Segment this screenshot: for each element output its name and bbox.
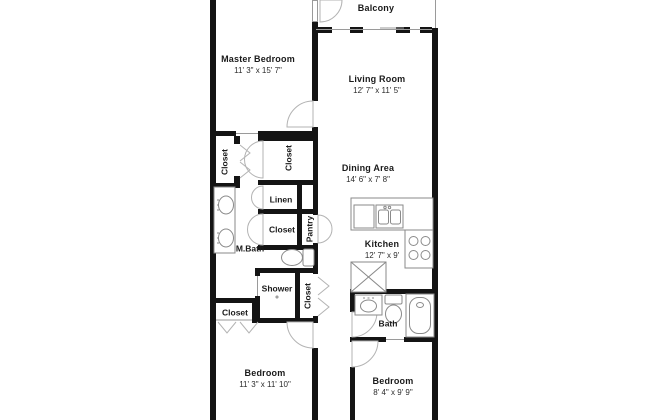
room-label-shower: Shower [262, 278, 293, 299]
room-label-kitchen: Kitchen 12' 7" x 9' [365, 239, 399, 261]
wall-core-right-upper [313, 136, 318, 215]
room-label-master-bedroom: Master Bedroom 11' 3" x 15' 7" [221, 54, 295, 76]
pantry-name: Pantry [305, 216, 315, 242]
closet-bedroom1-name: Closet [222, 308, 248, 318]
bedroom2-door-swing [352, 341, 378, 367]
closet-shower-name: Closet [303, 283, 313, 309]
wall-bedroom2-left [350, 367, 355, 420]
mbath-toilet-tank [303, 249, 314, 266]
wall-master-bottom-right [258, 131, 318, 136]
bedroom2-name: Bedroom [373, 376, 414, 388]
balcony-door-jamb [313, 1, 318, 22]
living-room-dims: 12' 7" x 11' 5" [349, 86, 406, 96]
wall-hallcloset-stub-top [234, 136, 240, 144]
closet-mbath-name: Closet [269, 225, 295, 235]
wall-bedroom1-right [312, 348, 318, 420]
wall-master-living [312, 22, 318, 101]
wall-core-top [258, 136, 318, 141]
floor-plan-drawing [0, 0, 650, 420]
kitchen-dims: 12' 7" x 9' [365, 251, 399, 261]
linen-name: Linen [270, 195, 293, 205]
stove-burner [409, 237, 418, 246]
mbath-toilet-bowl [282, 250, 303, 266]
bedroom1-closet-bifold [218, 322, 258, 333]
room-label-closet-master-hall: Closet [214, 149, 235, 175]
room-label-closet-mbath: Closet [269, 219, 295, 240]
bath-name: Bath [379, 319, 398, 329]
room-label-closet-shower: Closet [297, 283, 318, 309]
wall-core-divider1 [258, 180, 318, 185]
balcony-door-swing [320, 0, 342, 22]
dining-area-name: Dining Area [342, 163, 394, 175]
bathtub-drain [417, 303, 424, 308]
mbath-name: M.Bath [236, 244, 264, 254]
room-label-mbath: M.Bath [236, 238, 264, 259]
kitchen-sink-bowl [391, 210, 401, 224]
bedroom1-door-swing [287, 322, 313, 348]
wall-bath-left [350, 294, 355, 312]
wall-shower-top [255, 268, 318, 273]
kitchen-faucet [388, 206, 390, 208]
dining-area-dims: 14' 6" x 7' 8" [342, 175, 394, 185]
mbath-sink [219, 196, 234, 214]
room-label-balcony: Balcony [358, 3, 394, 15]
room-label-living-room: Living Room 12' 7" x 11' 5" [349, 74, 406, 96]
bath-toilet-tank [385, 295, 402, 304]
room-label-closet-core: Closet [278, 145, 299, 171]
stove-burner [421, 251, 430, 260]
stove-burner [409, 251, 418, 260]
master-entry-door-swing [287, 101, 313, 127]
room-label-bedroom1: Bedroom 11' 3" x 11' 10" [239, 368, 291, 390]
room-label-pantry: Pantry [299, 216, 320, 242]
room-label-bath: Bath [379, 313, 398, 334]
floor-plan: Balcony Master Bedroom 11' 3" x 15' 7" L… [0, 0, 650, 420]
closet-shower-bifold [318, 277, 329, 316]
wall-bath-bottom-right [404, 337, 438, 342]
bath-sink [361, 300, 377, 312]
room-label-linen: Linen [270, 189, 293, 210]
bedroom2-dims: 8' 4" x 9' 9" [373, 388, 414, 398]
mbath-sink [219, 229, 234, 247]
closet-core-name: Closet [284, 145, 294, 171]
linen-door-swing [252, 186, 263, 209]
room-label-closet-bedroom1: Closet [222, 302, 248, 323]
kitchen-name: Kitchen [365, 239, 399, 251]
bedroom1-dims: 11' 3" x 11' 10" [239, 380, 291, 390]
bath-door-swing [352, 312, 377, 337]
living-room-name: Living Room [349, 74, 406, 86]
room-label-bedroom2: Bedroom 8' 4" x 9' 9" [373, 376, 414, 398]
kitchen-sink-bowl [379, 210, 389, 224]
kitchen-faucet [384, 206, 386, 208]
wall-core-divider2 [258, 209, 318, 214]
dishwasher [354, 205, 374, 228]
pantry-door-swing [318, 215, 332, 243]
wall-shower-left-stub [255, 268, 260, 276]
master-bedroom-dims: 11' 3" x 15' 7" [221, 66, 295, 76]
bedroom1-name: Bedroom [239, 368, 291, 380]
washer-dryer-box [351, 262, 386, 292]
balcony-name: Balcony [358, 3, 394, 15]
shower-name: Shower [262, 284, 293, 294]
master-bedroom-name: Master Bedroom [221, 54, 295, 66]
closet-master-hall-name: Closet [220, 149, 230, 175]
stove-burner [421, 237, 430, 246]
room-label-dining-area: Dining Area 14' 6" x 7' 8" [342, 163, 394, 185]
wall-master-bottom-left [210, 131, 236, 136]
stove-counter [405, 230, 433, 268]
